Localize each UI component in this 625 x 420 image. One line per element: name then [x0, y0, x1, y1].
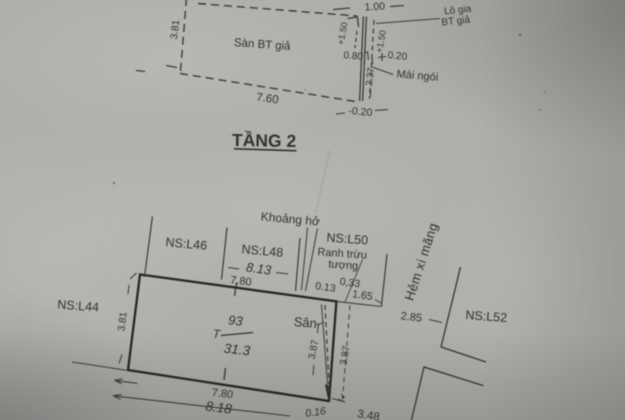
svg-text:93: 93: [227, 312, 244, 329]
svg-text:NS:L44: NS:L44: [57, 298, 100, 315]
svg-text:0.20: 0.20: [387, 50, 408, 63]
svg-text:2.85: 2.85: [400, 310, 423, 324]
svg-text:tượng: tượng: [328, 258, 359, 272]
svg-text:0.80: 0.80: [343, 50, 364, 63]
svg-text:1.00: 1.00: [364, 0, 385, 13]
svg-text:2.37: 2.37: [364, 67, 377, 87]
svg-text:TẦNG 2: TẦNG 2: [232, 129, 297, 151]
svg-text:31.3: 31.3: [223, 341, 251, 359]
svg-text:-0.20: -0.20: [348, 105, 373, 119]
svg-text:NS:L52: NS:L52: [465, 308, 508, 325]
svg-text:NS:L50: NS:L50: [326, 231, 369, 248]
svg-text:Sân: Sân: [293, 314, 317, 331]
